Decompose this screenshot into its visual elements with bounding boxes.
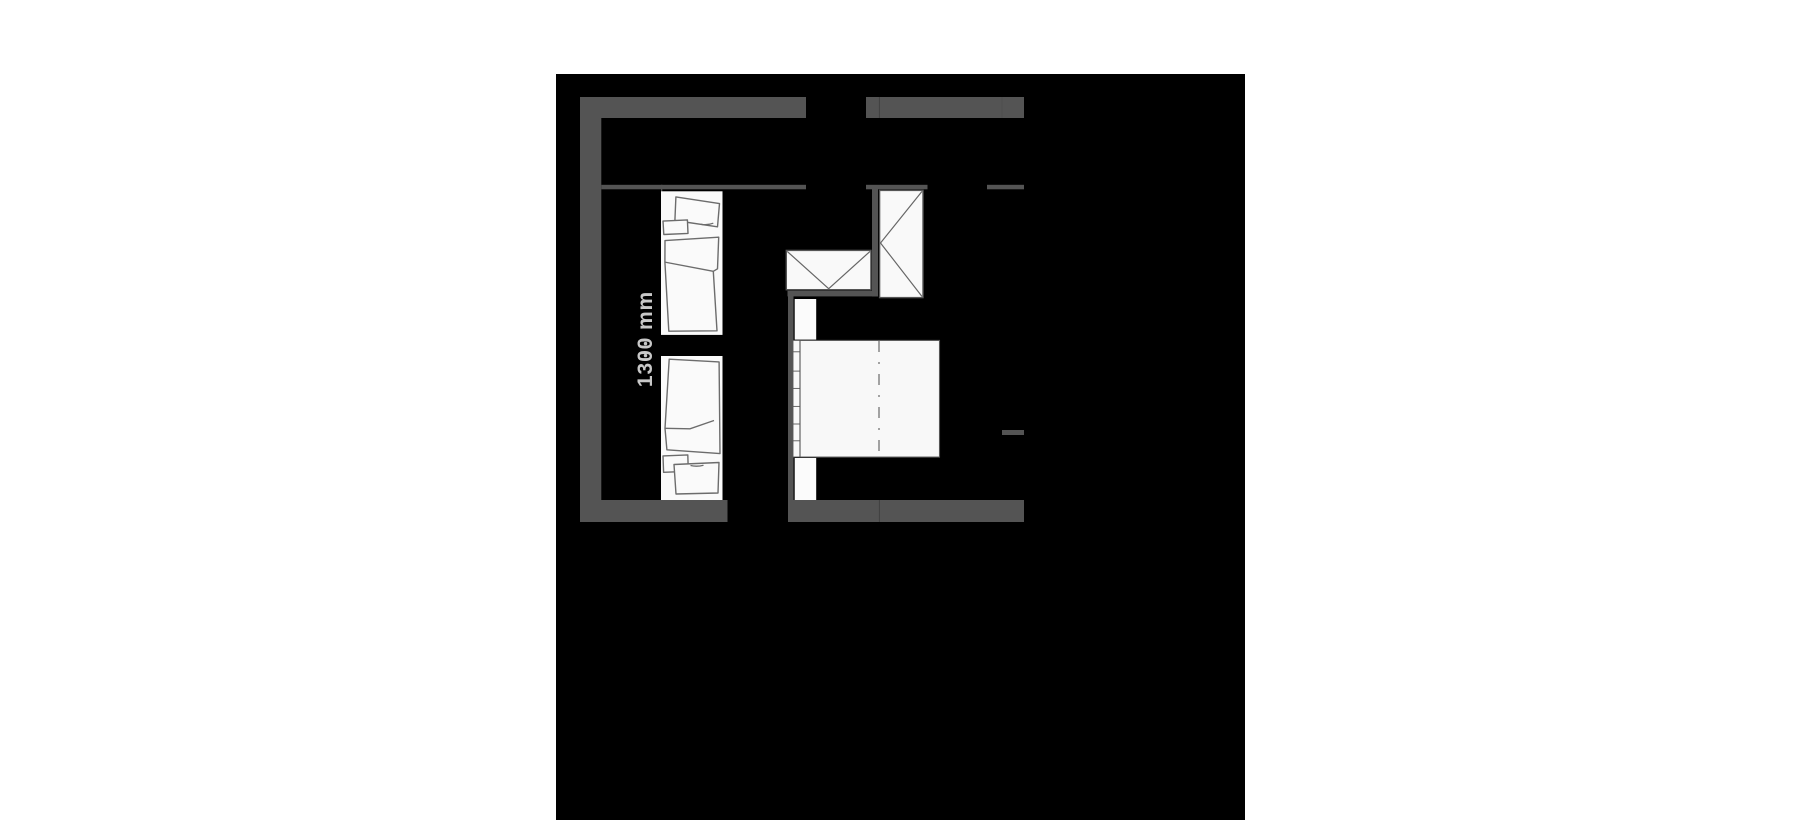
svg-text:1300 mm: 1300 mm [634,291,657,387]
